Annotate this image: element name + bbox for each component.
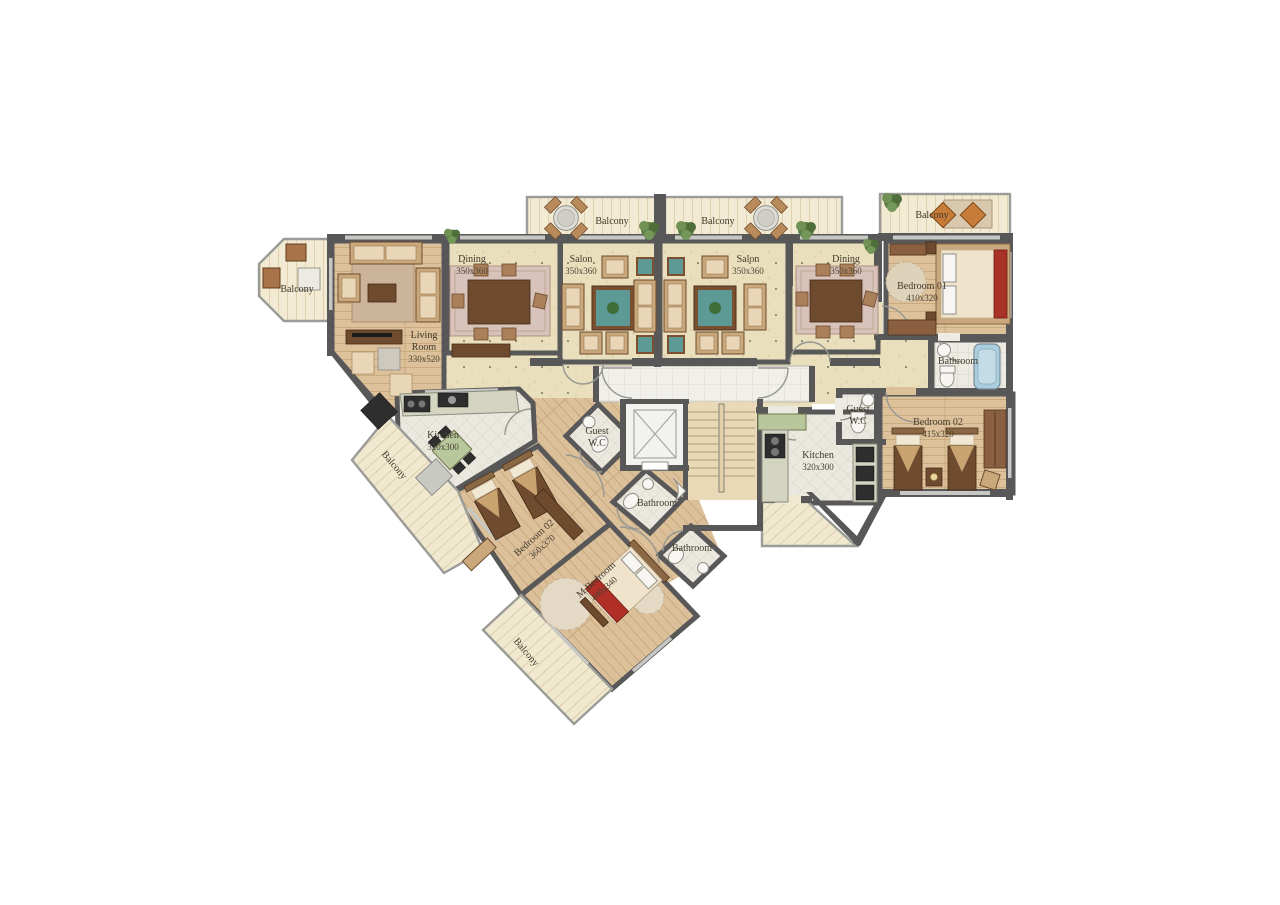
label-bathroom-left1: Bathroom bbox=[637, 498, 677, 509]
label-dining-left: Dining bbox=[458, 254, 486, 265]
floor-plan-svg: Balcony Living Room 330x520 Dining 350x3… bbox=[0, 0, 1280, 905]
label-bathroom-left2: Bathroom bbox=[672, 543, 712, 554]
floor-plan-canvas: Balcony Living Room 330x520 Dining 350x3… bbox=[0, 0, 1280, 905]
label-dining-right: Dining bbox=[832, 254, 860, 265]
label-kitchen-left: Kitchen bbox=[427, 430, 459, 441]
label-dining-right-dims: 350x360 bbox=[830, 266, 862, 276]
balcony-top-left-floor bbox=[527, 197, 658, 238]
label-guest-wc-left-1: Guest bbox=[585, 426, 609, 437]
stair-rail bbox=[719, 404, 724, 492]
label-guest-wc-left-2: W.C bbox=[588, 438, 606, 449]
label-living-1: Living bbox=[411, 330, 438, 341]
elevator-door bbox=[642, 462, 668, 470]
label-salon-left: Salon bbox=[570, 254, 593, 265]
label-bathroom-right: Bathroom bbox=[938, 356, 978, 367]
label-salon-right-dims: 350x360 bbox=[732, 266, 764, 276]
label-kitchen-right-dims: 320x300 bbox=[802, 462, 834, 472]
label-balcony-top-left: Balcony bbox=[595, 216, 628, 227]
label-bedroom01: Bedroom 01 bbox=[897, 281, 947, 292]
label-salon-left-dims: 350x360 bbox=[565, 266, 597, 276]
label-salon-right: Salon bbox=[737, 254, 760, 265]
label-guest-wc-right-1: Guest bbox=[846, 404, 870, 415]
label-balcony-right: Balcony bbox=[915, 210, 948, 221]
label-kitchen-right: Kitchen bbox=[802, 450, 834, 461]
label-bedroom02-right-dims: 415x320 bbox=[922, 429, 954, 439]
label-dining-left-dims: 350x360 bbox=[456, 266, 488, 276]
label-kitchen-left-dims: 320x300 bbox=[427, 442, 459, 452]
label-guest-wc-right-2: W.C bbox=[849, 416, 867, 427]
label-bedroom01-dims: 410x320 bbox=[906, 293, 938, 303]
entry-lobby-floor bbox=[595, 366, 812, 402]
label-living-2: Room bbox=[412, 342, 437, 353]
label-balcony-bay: Balcony bbox=[280, 284, 313, 295]
label-bedroom02-right: Bedroom 02 bbox=[913, 417, 963, 428]
label-living-dims: 330x520 bbox=[408, 354, 440, 364]
label-balcony-top-right: Balcony bbox=[701, 216, 734, 227]
